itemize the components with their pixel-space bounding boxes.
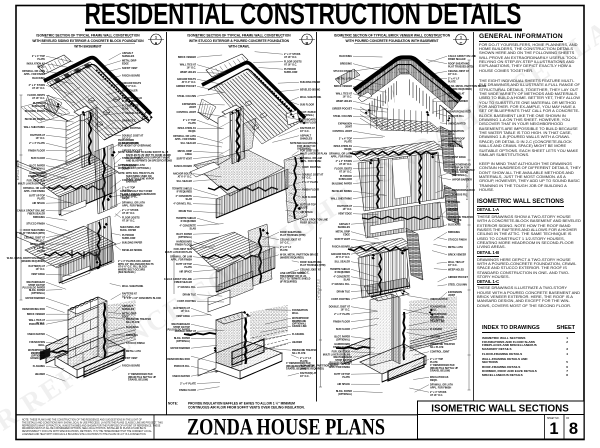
svg-text:HEADER: HEADER bbox=[35, 373, 45, 376]
svg-text:JOINT: JOINT bbox=[448, 294, 456, 297]
svg-text:1'-6" MIN 8'-0" CLG: 1'-6" MIN 8'-0" CLG bbox=[318, 279, 321, 300]
svg-text:VENT EDGE: VENT EDGE bbox=[176, 315, 190, 318]
svg-text:(IF REQUIRED): (IF REQUIRED) bbox=[280, 280, 297, 283]
svg-text:DRAIN TILE: DRAIN TILE bbox=[337, 291, 351, 294]
svg-text:FIBER SEALER: FIBER SEALER bbox=[174, 281, 192, 284]
svg-text:WITH STUCCO EXTERIOR & POURED: WITH STUCCO EXTERIOR & POURED CONCRETE F… bbox=[189, 39, 290, 43]
svg-text:(SEE MANUAL): (SEE MANUAL) bbox=[118, 271, 136, 274]
svg-text:AT 16" O.C.: AT 16" O.C. bbox=[32, 87, 45, 90]
svg-text:C: C bbox=[460, 40, 463, 45]
svg-text:8: 8 bbox=[569, 420, 578, 438]
svg-text:16" O.C.: 16" O.C. bbox=[36, 268, 46, 271]
svg-text:2" x 4" PLATE: 2" x 4" PLATE bbox=[29, 142, 45, 145]
svg-text:METAL LATH: METAL LATH bbox=[337, 78, 352, 81]
svg-text:UNEXCAVATED: UNEXCAVATED bbox=[448, 123, 466, 126]
svg-text:SLAB: SLAB bbox=[185, 198, 192, 201]
svg-text:FLASHING: FLASHING bbox=[448, 201, 460, 204]
svg-text:FINISH FLOOR: FINISH FLOOR bbox=[333, 346, 350, 349]
svg-text:(WHERE REQUIRED): (WHERE REQUIRED) bbox=[448, 88, 472, 91]
svg-text:FIBER SEALER: FIBER SEALER bbox=[300, 221, 318, 224]
svg-text:(OPTIONAL): (OPTIONAL) bbox=[31, 167, 45, 170]
svg-text:BLDG. PAPER: BLDG. PAPER bbox=[120, 229, 136, 232]
svg-text:SLAB: SLAB bbox=[343, 278, 350, 281]
svg-text:CONT. FOOTING: CONT. FOOTING bbox=[122, 127, 141, 130]
svg-text:(OPTIONAL): (OPTIONAL) bbox=[452, 174, 466, 177]
svg-text:BRIDGING: BRIDGING bbox=[126, 334, 138, 337]
svg-text:1: 1 bbox=[306, 34, 309, 39]
svg-text:WITH CRAWL: WITH CRAWL bbox=[228, 45, 249, 49]
svg-text:ISOMETRIC SECTION OF TYPICAL F: ISOMETRIC SECTION OF TYPICAL FRAME WALL … bbox=[36, 33, 140, 37]
svg-text:BRICK VENEER: BRICK VENEER bbox=[334, 85, 352, 88]
svg-text:FLASHING: FLASHING bbox=[292, 333, 304, 336]
svg-text:8'-0" CLG HEIGHT: 8'-0" CLG HEIGHT bbox=[17, 159, 20, 180]
svg-text:(WHERE REQUIRED): (WHERE REQUIRED) bbox=[300, 367, 324, 370]
svg-text:VENT EDGE: VENT EDGE bbox=[338, 213, 352, 216]
svg-text:MULTI LAYER OR PLAN: MULTI LAYER OR PLAN bbox=[300, 152, 327, 155]
svg-text:WEEP HOLES: WEEP HOLES bbox=[180, 71, 196, 74]
svg-text:REQD.: REQD. bbox=[122, 197, 130, 200]
svg-text:MULTI LAYER OR PLAN: MULTI LAYER OR PLAN bbox=[18, 182, 45, 185]
svg-text:16" O.C.: 16" O.C. bbox=[187, 333, 197, 336]
svg-text:PLATE: PLATE bbox=[37, 58, 45, 61]
svg-text:HEADER: HEADER bbox=[430, 336, 440, 339]
svg-text:STEEL COLUMN: STEEL COLUMN bbox=[177, 95, 196, 98]
svg-text:PLATE: PLATE bbox=[300, 360, 308, 363]
svg-text:16" O.C.: 16" O.C. bbox=[448, 73, 458, 76]
svg-text:PLAT TRUSSES (MTD): PLAT TRUSSES (MTD) bbox=[20, 232, 46, 235]
svg-text:BRICK VENEER: BRICK VENEER bbox=[178, 56, 196, 59]
svg-text:WALL SHEATHING: WALL SHEATHING bbox=[300, 96, 321, 99]
svg-text:METAL LATH: METAL LATH bbox=[448, 246, 463, 249]
svg-text:AT 16" O.C.: AT 16" O.C. bbox=[122, 212, 135, 215]
svg-text:BRIDGING: BRIDGING bbox=[448, 231, 460, 234]
svg-text:FLASHING: FLASHING bbox=[430, 328, 442, 331]
svg-text:REINFORCING ROD: REINFORCING ROD bbox=[22, 308, 45, 311]
svg-text:APPL. FOR FINISH: APPL. FOR FINISH bbox=[430, 386, 452, 389]
svg-text:16" O.C.: 16" O.C. bbox=[122, 295, 132, 298]
svg-text:2" x 4" PLATE: 2" x 4" PLATE bbox=[180, 383, 196, 386]
svg-text:1: 1 bbox=[155, 34, 158, 39]
svg-text:WEEP HOLES: WEEP HOLES bbox=[448, 269, 464, 272]
svg-text:SOFFIT VENT: SOFFIT VENT bbox=[176, 158, 192, 161]
svg-text:UNEXCAVATED: UNEXCAVATED bbox=[27, 333, 45, 336]
svg-text:AT 16" O.C.: AT 16" O.C. bbox=[339, 163, 352, 166]
svg-text:AT 16" O.C.: AT 16" O.C. bbox=[32, 97, 45, 100]
svg-text:POROUS FILL: POROUS FILL bbox=[448, 115, 465, 118]
svg-text:FINISH FLOOR: FINISH FLOOR bbox=[302, 189, 319, 192]
svg-text:SHINGLES: SHINGLES bbox=[338, 226, 351, 229]
svg-text:16" O.C.: 16" O.C. bbox=[280, 241, 290, 244]
svg-text:AT 6'-0" O.C.: AT 6'-0" O.C. bbox=[122, 85, 137, 88]
svg-text:4" GRAVEL FILL: 4" GRAVEL FILL bbox=[177, 286, 196, 289]
svg-text:PLATE: PLATE bbox=[342, 376, 350, 379]
svg-text:EDGE: EDGE bbox=[343, 233, 350, 236]
svg-text:FINISH FLOOR: FINISH FLOOR bbox=[28, 150, 45, 153]
svg-text:16" O.C.: 16" O.C. bbox=[448, 95, 458, 98]
svg-text:16" O.C.: 16" O.C. bbox=[341, 308, 351, 311]
svg-text:STUCCO FINISH: STUCCO FINISH bbox=[126, 342, 145, 345]
svg-text:16" O.C.: 16" O.C. bbox=[36, 239, 46, 242]
svg-text:GRADE LINE: GRADE LINE bbox=[448, 145, 463, 148]
svg-text:STEEL COLUMN: STEEL COLUMN bbox=[448, 284, 467, 287]
svg-text:SILL PLATE: SILL PLATE bbox=[292, 352, 306, 355]
svg-text:NOTE:: NOTE: bbox=[168, 402, 178, 406]
svg-text:SLAB: SLAB bbox=[122, 107, 129, 110]
svg-text:JOINT: JOINT bbox=[345, 125, 353, 128]
svg-text:VAPOR BARRIER: VAPOR BARRIER bbox=[25, 297, 45, 300]
svg-text:(OPTIONAL): (OPTIONAL) bbox=[336, 338, 350, 341]
svg-text:SHINGLES: SHINGLES bbox=[300, 137, 313, 140]
svg-text:8'-0" CLG HEIGHT 8'-0" CLG: 8'-0" CLG HEIGHT 8'-0" CLG bbox=[466, 169, 469, 200]
svg-text:NOTE:: NOTE: bbox=[118, 172, 126, 175]
svg-text:A: A bbox=[155, 40, 158, 45]
svg-text:FASCIA BOARD: FASCIA BOARD bbox=[122, 365, 140, 368]
svg-text:BEVELED SIDING: BEVELED SIDING bbox=[300, 89, 320, 92]
svg-text:VAPOR BARRIER: VAPOR BARRIER bbox=[448, 100, 468, 103]
svg-text:16" O.C.: 16" O.C. bbox=[36, 322, 46, 325]
svg-text:WALL: WALL bbox=[292, 312, 299, 315]
svg-text:AIR SPACE: AIR SPACE bbox=[300, 211, 313, 214]
svg-text:BUILDING PAPER: BUILDING PAPER bbox=[122, 242, 143, 245]
svg-text:(OPTIONAL): (OPTIONAL) bbox=[176, 340, 190, 343]
svg-text:REINFORCING ROD: REINFORCING ROD bbox=[452, 189, 475, 192]
svg-text:RESPONSIBILITY FOR LITE WITH S: RESPONSIBILITY FOR LITE WITH SPECIFICATI… bbox=[22, 430, 152, 433]
svg-text:AT 16" O.C.: AT 16" O.C. bbox=[284, 56, 297, 59]
svg-text:GRADE LINE: GRADE LINE bbox=[30, 357, 45, 360]
svg-text:VENT EDGE: VENT EDGE bbox=[452, 156, 466, 159]
svg-text:POROUS FILL: POROUS FILL bbox=[174, 365, 191, 368]
svg-text:4" GRAVEL FILL: 4" GRAVEL FILL bbox=[173, 203, 192, 206]
svg-text:ISOMETRIC WALL SECTIONS: ISOMETRIC WALL SECTIONS bbox=[431, 404, 569, 415]
svg-text:EDGE: EDGE bbox=[122, 62, 129, 65]
svg-text:(WHERE REQUIRED): (WHERE REQUIRED) bbox=[21, 260, 45, 263]
svg-text:JOINT: JOINT bbox=[189, 106, 197, 109]
svg-text:WITH BEVELED SIDING EXTERIOR &: WITH BEVELED SIDING EXTERIOR & CONCRETE … bbox=[32, 39, 144, 43]
svg-text:GRADE LINE: GRADE LINE bbox=[430, 321, 445, 324]
svg-text:BUILDING PAPER: BUILDING PAPER bbox=[332, 183, 353, 186]
svg-text:BEVELED SIDING: BEVELED SIDING bbox=[25, 118, 45, 121]
svg-text:4" GRAVEL FILL: 4" GRAVEL FILL bbox=[331, 283, 350, 286]
svg-text:SOFFIT VENT: SOFFIT VENT bbox=[122, 357, 138, 360]
svg-text:REQD.: REQD. bbox=[430, 379, 438, 382]
svg-text:STUCCO FINISH: STUCCO FINISH bbox=[333, 70, 352, 73]
svg-text:REQD.: REQD. bbox=[188, 130, 196, 133]
svg-text:FINISH FLOOR: FINISH FLOOR bbox=[179, 389, 196, 392]
svg-text:BUILDING PAPER: BUILDING PAPER bbox=[25, 110, 46, 113]
svg-text:PLATE: PLATE bbox=[344, 140, 352, 143]
svg-text:ISOMETRIC SECTION OF TYPICAL B: ISOMETRIC SECTION OF TYPICAL BRICK VENEE… bbox=[334, 33, 451, 37]
svg-text:ISOMETRIC SECTION OF TYPICAL F: ISOMETRIC SECTION OF TYPICAL FRAME WALL … bbox=[187, 33, 291, 37]
svg-text:VAPOR BARRIER: VAPOR BARRIER bbox=[170, 347, 190, 350]
svg-text:JOINT: JOINT bbox=[122, 167, 130, 170]
svg-text:FINISH FLOOR: FINISH FLOOR bbox=[300, 121, 317, 124]
svg-text:BEVELED SIDING: BEVELED SIDING bbox=[122, 249, 142, 252]
svg-text:(OPTIONAL): (OPTIONAL) bbox=[178, 236, 192, 239]
svg-text:HEADER: HEADER bbox=[292, 341, 302, 344]
svg-text:GRAVEL BELOW): GRAVEL BELOW) bbox=[128, 379, 148, 382]
svg-text:16" O.C.: 16" O.C. bbox=[187, 66, 197, 69]
svg-text:FIBER SEALER: FIBER SEALER bbox=[448, 58, 466, 61]
svg-text:SOFFIT VENT: SOFFIT VENT bbox=[122, 67, 138, 70]
svg-text:THE DETAILS AND CONDITIONS MAY: THE DETAILS AND CONDITIONS MAY SHOW LOCA… bbox=[22, 421, 163, 424]
svg-text:IF REQUIRED: IF REQUIRED bbox=[181, 220, 197, 223]
svg-text:ZONDA HOUSE PLANS: ZONDA HOUSE PLANS bbox=[187, 415, 385, 440]
svg-text:FLASHING: FLASHING bbox=[33, 365, 45, 368]
svg-text:2" x 4" PLATE: 2" x 4" PLATE bbox=[334, 313, 350, 316]
svg-text:WALL SHEATHING: WALL SHEATHING bbox=[331, 198, 352, 201]
svg-text:REPRESENTS WHAT IS PRACTICAL I: REPRESENTS WHAT IS PRACTICAL IN MOST HOM… bbox=[22, 424, 161, 427]
svg-text:WEEP HOLES: WEEP HOLES bbox=[122, 142, 138, 145]
svg-text:1: 1 bbox=[549, 420, 558, 438]
svg-text:CONT. FOOTING: CONT. FOOTING bbox=[331, 298, 350, 301]
svg-text:16" O.C.: 16" O.C. bbox=[448, 264, 458, 267]
svg-text:BLOCKING: BLOCKING bbox=[339, 55, 352, 58]
svg-text:4" GRAVEL FILL: 4" GRAVEL FILL bbox=[122, 112, 141, 115]
svg-text:SILL SEALER: SILL SEALER bbox=[335, 261, 351, 264]
svg-text:FASCIA BOARD: FASCIA BOARD bbox=[174, 165, 192, 168]
svg-text:WITH POURED CONCRETE FOUNDATIO: WITH POURED CONCRETE FOUNDATION WITH BAS… bbox=[346, 39, 439, 43]
svg-text:REINFORCING ROD: REINFORCING ROD bbox=[448, 110, 471, 113]
svg-text:WALL: WALL bbox=[448, 133, 455, 136]
svg-text:BEVELED SIDING: BEVELED SIDING bbox=[332, 190, 352, 193]
svg-text:EDGE: EDGE bbox=[185, 153, 192, 156]
svg-text:METAL LATH: METAL LATH bbox=[30, 243, 45, 246]
svg-text:CONT. FOOTING: CONT. FOOTING bbox=[302, 166, 321, 169]
svg-text:CONTINUOUS AIR FLOW FROM SOFFI: CONTINUOUS AIR FLOW FROM SOFFIT VENTS OV… bbox=[188, 406, 305, 410]
svg-text:AIR SPACE: AIR SPACE bbox=[179, 271, 192, 274]
svg-text:WEEP HOLES: WEEP HOLES bbox=[336, 100, 352, 103]
svg-text:2" x 4" PLATE: 2" x 4" PLATE bbox=[302, 181, 318, 184]
svg-text:WALL: WALL bbox=[430, 308, 437, 311]
svg-text:PLATE: PLATE bbox=[37, 197, 45, 200]
svg-text:CONTROL JOINT: CONTROL JOINT bbox=[333, 130, 353, 133]
svg-text:GRADE LINE: GRADE LINE bbox=[292, 325, 307, 328]
svg-text:AT 16" O.C.: AT 16" O.C. bbox=[284, 63, 297, 66]
svg-text:SOFFIT VENT: SOFFIT VENT bbox=[334, 238, 350, 241]
svg-text:EDGE: EDGE bbox=[122, 315, 129, 318]
svg-text:BRIDGING: BRIDGING bbox=[340, 63, 352, 66]
svg-text:STEEL COLUMN: STEEL COLUMN bbox=[122, 157, 141, 160]
svg-text:APPL. FOR FINISH: APPL. FOR FINISH bbox=[122, 204, 144, 207]
svg-text:BRIDGING: BRIDGING bbox=[33, 216, 45, 219]
svg-text:FIBER SEALER: FIBER SEALER bbox=[27, 212, 45, 215]
svg-text:SUBFLOOR: SUBFLOOR bbox=[284, 71, 298, 74]
svg-text:B: B bbox=[306, 40, 309, 45]
svg-text:GRAVEL BELOW): GRAVEL BELOW) bbox=[430, 370, 450, 373]
svg-text:REQD.: REQD. bbox=[344, 148, 352, 151]
svg-text:AT 6'-0" O.C.: AT 6'-0" O.C. bbox=[182, 81, 197, 84]
svg-text:UNEXCAVATED: UNEXCAVATED bbox=[172, 375, 190, 378]
svg-text:SUB FLOOR: SUB FLOOR bbox=[336, 328, 350, 331]
svg-text:SUBFLOOR: SUBFLOOR bbox=[32, 105, 46, 108]
svg-text:SHINGLES: SHINGLES bbox=[122, 55, 135, 58]
svg-text:WALL SHEATHING: WALL SHEATHING bbox=[122, 285, 143, 288]
svg-text:FASCIA BOARD: FASCIA BOARD bbox=[122, 75, 140, 78]
svg-text:PLATE: PLATE bbox=[448, 80, 456, 83]
svg-text:APPL. FOR FINISH: APPL. FOR FINISH bbox=[331, 155, 353, 158]
svg-text:DRAWINGS MUST AT ALL BE CONSID: DRAWINGS MUST AT ALL BE CONSIDERED OPTIO… bbox=[22, 427, 146, 430]
svg-text:STUCCO FINISH: STUCCO FINISH bbox=[26, 223, 45, 226]
svg-text:16" O.C.: 16" O.C. bbox=[300, 375, 310, 378]
svg-text:16" O.C.: 16" O.C. bbox=[300, 130, 310, 133]
svg-text:DRAIN TILE: DRAIN TILE bbox=[183, 294, 197, 297]
svg-text:PLATE: PLATE bbox=[300, 206, 308, 209]
svg-text:SILL PLATE: SILL PLATE bbox=[430, 346, 444, 349]
svg-text:(WHERE REQUIRED): (WHERE REQUIRED) bbox=[280, 256, 304, 259]
svg-text:SILL SEALER: SILL SEALER bbox=[177, 180, 193, 183]
svg-text:CONTROL JOINT: CONTROL JOINT bbox=[430, 351, 450, 354]
svg-text:REQD.: REQD. bbox=[37, 65, 45, 68]
svg-text:SUBFLOOR: SUBFLOOR bbox=[122, 237, 136, 240]
svg-text:AT 6'-0" O.C.: AT 6'-0" O.C. bbox=[336, 256, 351, 259]
svg-text:16" O.C.: 16" O.C. bbox=[343, 95, 353, 98]
svg-text:FOR HEIGHT OF OVERHANG: FOR HEIGHT OF OVERHANG bbox=[118, 145, 151, 148]
svg-text:BLOCKING: BLOCKING bbox=[32, 77, 45, 80]
svg-text:REINFORCING ROD: REINFORCING ROD bbox=[167, 358, 190, 361]
svg-text:16" O.C.: 16" O.C. bbox=[343, 208, 353, 211]
svg-text:FINISH FLOOR: FINISH FLOOR bbox=[333, 321, 350, 324]
svg-text:SILL PLATE: SILL PLATE bbox=[448, 219, 462, 222]
svg-text:DRAIN TILE: DRAIN TILE bbox=[122, 120, 136, 123]
svg-text:CONT. FOOTING: CONT. FOOTING bbox=[177, 300, 196, 303]
svg-text:AIR SPACE: AIR SPACE bbox=[32, 202, 45, 205]
svg-text:(OPTIONAL): (OPTIONAL) bbox=[300, 114, 314, 117]
svg-text:APPL. FOR FINISH: APPL. FOR FINISH bbox=[300, 160, 322, 163]
svg-text:VENT EDGE: VENT EDGE bbox=[31, 273, 45, 276]
svg-text:FASCIA BOARD: FASCIA BOARD bbox=[332, 246, 350, 249]
svg-text:CONTROL JOINT: CONTROL JOINT bbox=[177, 111, 197, 114]
svg-text:PLUS BLDG PAPER: PLUS BLDG PAPER bbox=[329, 362, 352, 365]
svg-text:(OPTIONAL): (OPTIONAL) bbox=[31, 292, 45, 295]
svg-text:1: 1 bbox=[460, 34, 463, 39]
svg-text:APPL. FOR FINISH: APPL. FOR FINISH bbox=[24, 190, 46, 193]
svg-text:HEADER: HEADER bbox=[448, 209, 458, 212]
svg-text:SILL SEALER: SILL SEALER bbox=[181, 142, 197, 145]
svg-text:WITH BASEMENT: WITH BASEMENT bbox=[74, 45, 101, 49]
svg-text:16" O.C.: 16" O.C. bbox=[302, 176, 312, 179]
svg-text:GIRDER POCKET: GIRDER POCKET bbox=[448, 276, 468, 279]
svg-text:AT 16" O.C.: AT 16" O.C. bbox=[339, 170, 352, 173]
svg-text:STEEL COLUMN: STEEL COLUMN bbox=[333, 115, 352, 118]
svg-text:GIRDER POCKET: GIRDER POCKET bbox=[176, 85, 196, 88]
svg-text:GIRDER POCKET: GIRDER POCKET bbox=[122, 150, 142, 153]
svg-text:GIRDER POCKET: GIRDER POCKET bbox=[332, 108, 352, 111]
svg-text:16" O.C.: 16" O.C. bbox=[36, 137, 46, 140]
svg-text:FINISH FLOOR: FINISH FLOOR bbox=[28, 175, 45, 178]
svg-text:DRAIN TILE: DRAIN TILE bbox=[179, 210, 193, 213]
svg-text:RESIDENTIAL CONSTRUCTION DETAI: RESIDENTIAL CONSTRUCTION DETAILS bbox=[85, 0, 522, 31]
svg-text:PLATE: PLATE bbox=[122, 189, 130, 192]
svg-text:AT 6'-0" O.C.: AT 6'-0" O.C. bbox=[178, 175, 193, 178]
svg-text:IF REQUIRED: IF REQUIRED bbox=[335, 271, 351, 274]
svg-text:LICENSED AND HELP WITH OFFICIA: LICENSED AND HELP WITH OFFICIALS & BUILD… bbox=[22, 433, 147, 436]
svg-text:AT 16" O.C.: AT 16" O.C. bbox=[122, 219, 135, 222]
svg-text:BUILDING PAPER: BUILDING PAPER bbox=[300, 81, 321, 84]
svg-text:FINISH FLOOR: FINISH FLOOR bbox=[175, 243, 192, 246]
svg-text:CONTROL JOINT: CONTROL JOINT bbox=[122, 179, 142, 182]
svg-text:PLAT TRUSSES (MTD): PLAT TRUSSES (MTD) bbox=[448, 65, 474, 68]
svg-text:SUB FLOOR: SUB FLOOR bbox=[31, 157, 45, 160]
svg-text:AIR SPACE: AIR SPACE bbox=[337, 383, 350, 386]
svg-text:PLATE: PLATE bbox=[37, 250, 45, 253]
svg-text:(OPTIONAL): (OPTIONAL) bbox=[338, 393, 352, 396]
svg-text:STUCCO FINISH: STUCCO FINISH bbox=[448, 239, 467, 242]
svg-text:IF REQUIRED: IF REQUIRED bbox=[177, 190, 193, 193]
svg-text:SUB FLOOR: SUB FLOOR bbox=[300, 104, 314, 107]
svg-text:SHINGLES: SHINGLES bbox=[122, 308, 135, 311]
svg-text:PLAT TRUSSES (MTD): PLAT TRUSSES (MTD) bbox=[280, 234, 306, 237]
svg-text:BRICK VENEER: BRICK VENEER bbox=[448, 254, 466, 257]
svg-text:16" O.C.: 16" O.C. bbox=[181, 310, 191, 313]
svg-text:PLATE: PLATE bbox=[430, 361, 438, 364]
svg-text:SUBFLOOR: SUBFLOOR bbox=[339, 178, 353, 181]
svg-text:PLATE: PLATE bbox=[184, 266, 192, 269]
svg-text:SILL PLATE: SILL PLATE bbox=[126, 321, 140, 324]
svg-text:AT 16" O.C.: AT 16" O.C. bbox=[430, 394, 443, 397]
svg-text:NOTE: THESE PLANS AND THE CON: NOTE: THESE PLANS AND THE CONSTRUCTION O… bbox=[22, 419, 143, 422]
svg-text:PLAT TRUSSES (MTD): PLAT TRUSSES (MTD) bbox=[300, 264, 326, 267]
svg-text:PLATE: PLATE bbox=[188, 122, 196, 125]
svg-text:WALL: WALL bbox=[38, 344, 45, 347]
svg-text:PLATE: PLATE bbox=[280, 249, 288, 252]
svg-text:16" O.C.: 16" O.C. bbox=[300, 271, 310, 274]
svg-text:MULTI LAYER OR PLAN: MULTI LAYER OR PLAN bbox=[165, 251, 192, 254]
svg-text:APPL. FOR FINISH: APPL. FOR FINISH bbox=[175, 138, 197, 141]
svg-text:SLAB: SLAB bbox=[189, 227, 196, 230]
svg-text:BLOCKING: BLOCKING bbox=[126, 326, 139, 329]
svg-text:WALL SHEATHING: WALL SHEATHING bbox=[24, 126, 45, 129]
svg-text:METAL LATH: METAL LATH bbox=[126, 350, 141, 353]
svg-text:IF REQUIRED: IF REQUIRED bbox=[122, 100, 138, 103]
svg-text:BRICK VENEER: BRICK VENEER bbox=[27, 313, 45, 316]
svg-text:APPL. FOR FINISH: APPL. FOR FINISH bbox=[24, 73, 46, 76]
svg-text:SUB FLOOR: SUB FLOOR bbox=[302, 196, 316, 199]
svg-text:SILL SEALER: SILL SEALER bbox=[122, 90, 138, 93]
svg-text:BLOCKING: BLOCKING bbox=[448, 224, 461, 227]
